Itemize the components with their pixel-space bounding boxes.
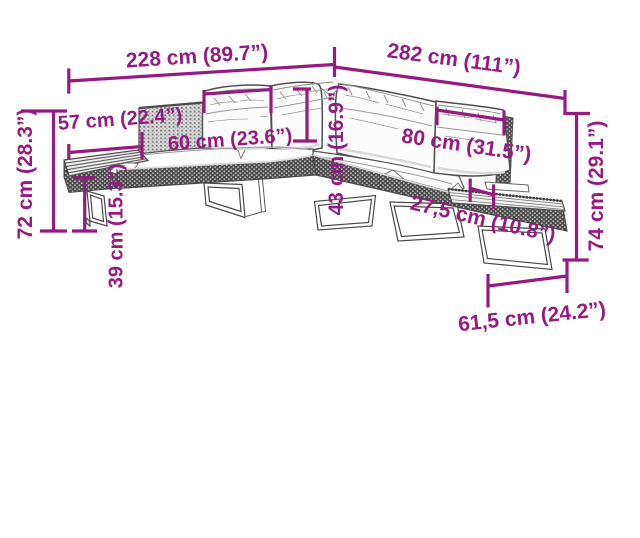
svg-text:43 cm (16.9”): 43 cm (16.9”)	[325, 85, 348, 216]
svg-text:39 cm (15.3”): 39 cm (15.3”)	[106, 164, 128, 289]
svg-text:72 cm (28.3”): 72 cm (28.3”)	[14, 109, 37, 240]
svg-text:74 cm (29.1”): 74 cm (29.1”)	[585, 121, 608, 252]
